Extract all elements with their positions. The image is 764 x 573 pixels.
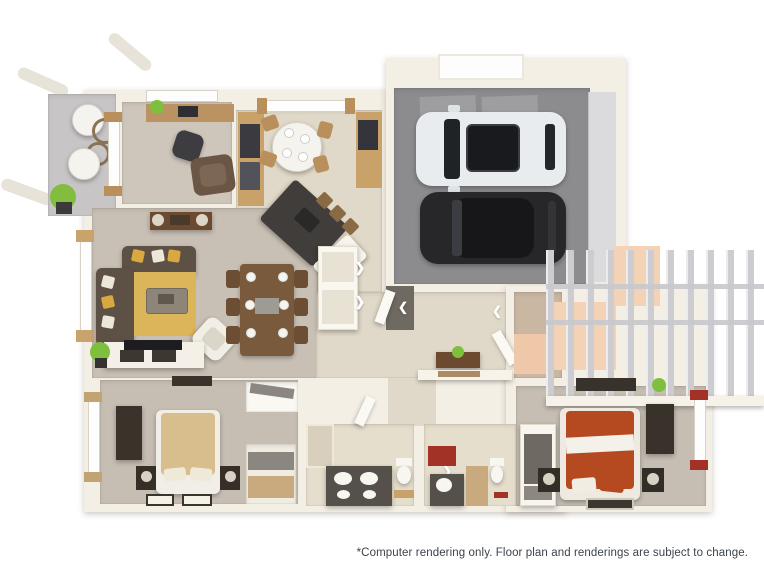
suv-mirror-left <box>448 105 460 112</box>
bedroom2-pillow-2 <box>189 467 212 482</box>
bathroom1-faucet-2 <box>363 490 376 499</box>
kitchen-appliance-1 <box>240 124 260 158</box>
suv-rear-glass <box>545 124 555 170</box>
bedroom2-cornice-bottom <box>84 472 102 482</box>
living-window <box>80 236 92 336</box>
bathroom2-shelves <box>466 466 488 506</box>
bathroom2-toilet-tank <box>490 458 504 466</box>
console-lamp-2 <box>196 214 208 226</box>
bathroom1-sink-2 <box>360 472 378 485</box>
sofa-pillow-2 <box>151 249 165 263</box>
bathroom2-towel <box>494 492 508 498</box>
master-valance-bottom <box>690 460 708 470</box>
bedroom2-rug-2 <box>182 494 212 506</box>
dining-chair-1 <box>226 270 240 288</box>
kitchen-window <box>264 100 348 112</box>
master-plant <box>652 378 666 392</box>
dining-chair-5 <box>294 298 308 316</box>
pergola-beam-3 <box>0 177 54 207</box>
kitchen-range <box>358 120 378 150</box>
kitchen-cornice-left <box>257 98 267 114</box>
master-rug <box>586 498 634 510</box>
patio-table-2 <box>68 148 100 180</box>
dining-chair-4 <box>294 270 308 288</box>
place-setting-6 <box>278 328 288 338</box>
office-curtain-top <box>104 112 122 122</box>
kitchen-cornice-right <box>345 98 355 114</box>
place-setting-1 <box>246 272 256 282</box>
bedroom2-cornice-top <box>84 392 102 402</box>
pantry-shelf-2 <box>322 290 354 324</box>
tv <box>124 340 182 350</box>
sedan-rear-highlight <box>548 201 556 253</box>
entry-half-wall-cap <box>438 371 480 377</box>
master-media-console <box>576 378 636 391</box>
dining-chair-3 <box>226 326 240 344</box>
linen-closet-shelf-1 <box>248 452 294 470</box>
living-cornice-bottom <box>76 330 94 342</box>
suv-sunroof <box>466 124 520 172</box>
master-pillow-1 <box>571 477 596 493</box>
master-lamp-right <box>647 473 659 485</box>
master-window <box>694 394 706 468</box>
dining-centerpiece <box>255 298 279 314</box>
sofa-pillow-3 <box>167 249 181 263</box>
media-cabinet-inset-2 <box>152 350 176 362</box>
breakfast-plate-2 <box>300 134 310 144</box>
master-dresser <box>646 404 674 454</box>
coffee-table-decor <box>158 294 174 304</box>
bathroom2-sink <box>436 478 452 492</box>
bedroom2-rug-1 <box>146 494 174 506</box>
pantry-shelf-1 <box>322 252 354 282</box>
door-chevron-4: ❮ <box>490 304 504 318</box>
dining-chair-6 <box>294 326 308 344</box>
bedroom2-comforter <box>161 413 215 475</box>
suv-windshield <box>444 119 460 179</box>
kitchen-appliance-2 <box>240 162 260 190</box>
office-curtain-bottom <box>104 186 122 196</box>
living-cornice-top <box>76 230 94 242</box>
breakfast-plate-3 <box>282 148 292 158</box>
media-cabinet-inset-1 <box>120 350 144 362</box>
office-desk-plant <box>150 100 164 114</box>
bedroom2-window <box>88 398 100 476</box>
pergola-beam-2 <box>106 31 154 74</box>
sofa-pillow-1 <box>131 249 145 263</box>
deck-railing-rail-1 <box>546 284 764 289</box>
bathroom1-shower <box>306 424 334 468</box>
bathroom1-toilet-tank <box>396 458 412 466</box>
entry-console-plant <box>452 346 464 358</box>
console-lamp-1 <box>152 214 164 226</box>
place-setting-2 <box>278 272 288 282</box>
bathroom1-sink-1 <box>334 472 352 485</box>
sedan-windshield-highlight <box>452 200 462 256</box>
office-armchair-cushion <box>199 162 228 187</box>
bedroom2-pillow-1 <box>163 467 186 482</box>
master-lamp-left <box>543 473 555 485</box>
master-pillow-2 <box>599 477 624 493</box>
place-setting-5 <box>246 328 256 338</box>
bathroom1-toilet-bowl <box>397 466 411 484</box>
console-decor <box>170 215 190 225</box>
garage-window <box>438 54 524 80</box>
hallway-floor <box>388 378 436 426</box>
disclaimer-text: *Computer rendering only. Floor plan and… <box>357 547 748 559</box>
bathroom2-toilet-bowl <box>491 466 503 483</box>
door-chevron-1: ❯ <box>352 260 368 276</box>
bathroom2-rug <box>428 446 456 466</box>
place-setting-4 <box>279 300 289 310</box>
breakfast-plate-1 <box>284 128 294 138</box>
bathroom1-vanity <box>326 466 392 506</box>
bedroom2-wall-shelf <box>172 376 212 386</box>
sofa-pillow-5 <box>101 295 115 309</box>
floor-plan-page: ❯❯❮❮❯ *Computer rendering only. Floor pl… <box>0 0 764 573</box>
door-chevron-2: ❯ <box>352 294 368 310</box>
living-plant-pot <box>95 358 107 368</box>
bedroom2-lamp-left <box>141 471 152 482</box>
bathroom1-faucet-1 <box>337 490 350 499</box>
office-window-side <box>108 118 120 190</box>
office-monitor <box>178 106 198 117</box>
breakfast-plate-4 <box>298 152 308 162</box>
linen-closet-shelf-2 <box>248 476 294 498</box>
sofa-pillow-6 <box>101 315 115 329</box>
master-valance-top <box>690 390 708 400</box>
place-setting-3 <box>245 300 255 310</box>
patio-planter <box>56 202 72 214</box>
dining-chair-2 <box>226 298 240 316</box>
sedan-glasshouse <box>452 198 534 258</box>
deck-railing-rail-2 <box>546 320 764 325</box>
bedroom2-dresser <box>116 406 142 460</box>
bedroom2-lamp-right <box>225 471 236 482</box>
bathroom1-mat <box>394 490 414 498</box>
door-chevron-3: ❮ <box>396 300 410 314</box>
